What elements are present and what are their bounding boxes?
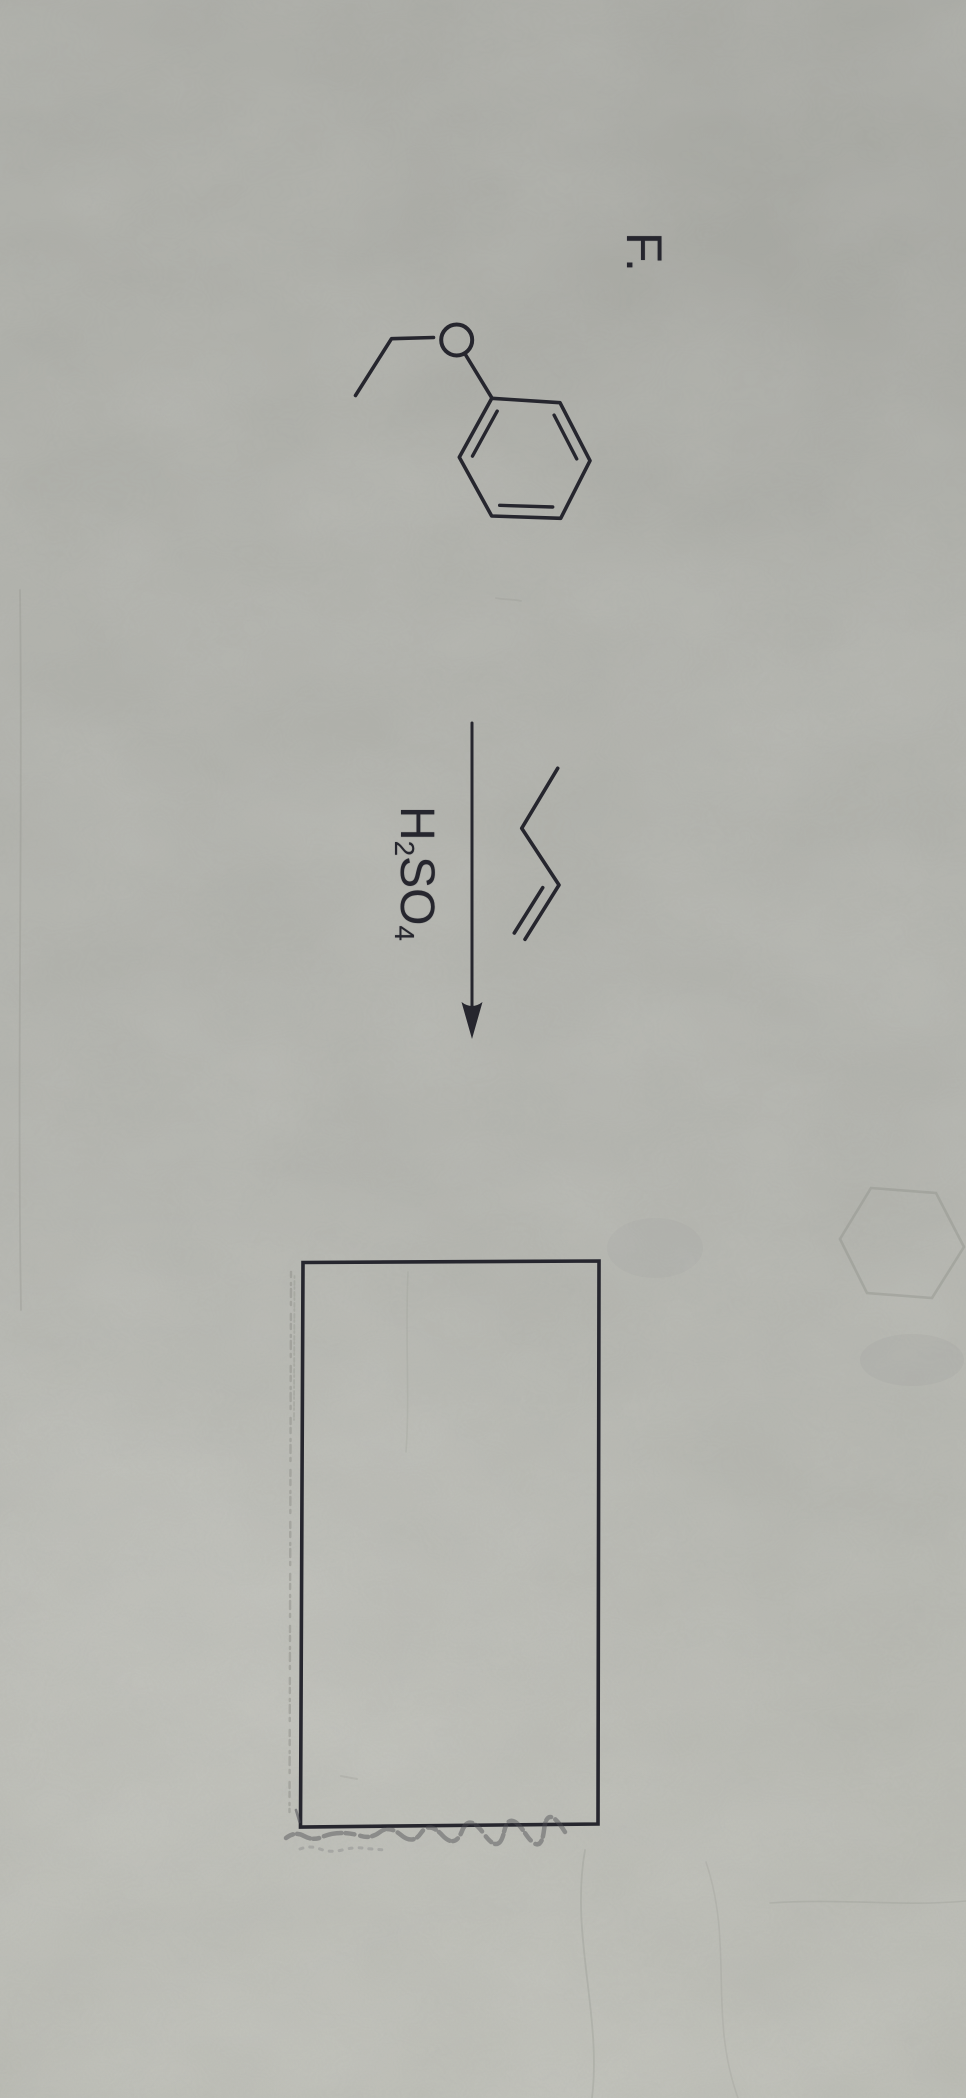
bleed-text-column (294, 1276, 295, 1420)
benzene-ring (459, 398, 590, 518)
reagent-h-count: 2 (389, 841, 420, 856)
reagent-so: SO (390, 856, 443, 925)
reaction-arrow (462, 723, 483, 1039)
ethoxybenzene-structure (356, 325, 591, 519)
paper-crease (581, 1850, 594, 2098)
paper-crease (706, 1862, 738, 2098)
worksheet-photo: F. H2SO4 (0, 0, 966, 2098)
bleed-through-artifacts (20, 590, 966, 2098)
bleed-blob (860, 1334, 964, 1386)
reagent-h: H (390, 806, 443, 841)
oxygen-ring-bond (466, 355, 492, 398)
bleed-hexagon (840, 1188, 964, 1298)
smudge-line (300, 1847, 386, 1851)
reagent-formula: H2SO4 (392, 806, 440, 941)
smudge-marks (286, 1810, 565, 1851)
bleed-blob (607, 1218, 703, 1278)
bleed-text-column (290, 1272, 292, 1812)
reagent-o-count: 4 (389, 926, 420, 941)
benzene-double-bonds (473, 411, 577, 507)
ethyl-chain-bonds (356, 338, 434, 396)
butene-structure (514, 768, 559, 939)
paper-crease (406, 1272, 408, 1452)
reaction-scheme (0, 0, 966, 2098)
butene-double-bond (514, 888, 542, 933)
paper-crease (770, 1901, 966, 1903)
smudge-line (286, 1817, 565, 1844)
pencil-dash (341, 1776, 357, 1779)
paper-crease (496, 598, 521, 601)
oxygen-atom (441, 325, 472, 356)
paper-crease (20, 590, 21, 1310)
problem-label: F. (619, 232, 669, 273)
arrow-head (462, 1002, 483, 1039)
answer-box (301, 1261, 600, 1827)
